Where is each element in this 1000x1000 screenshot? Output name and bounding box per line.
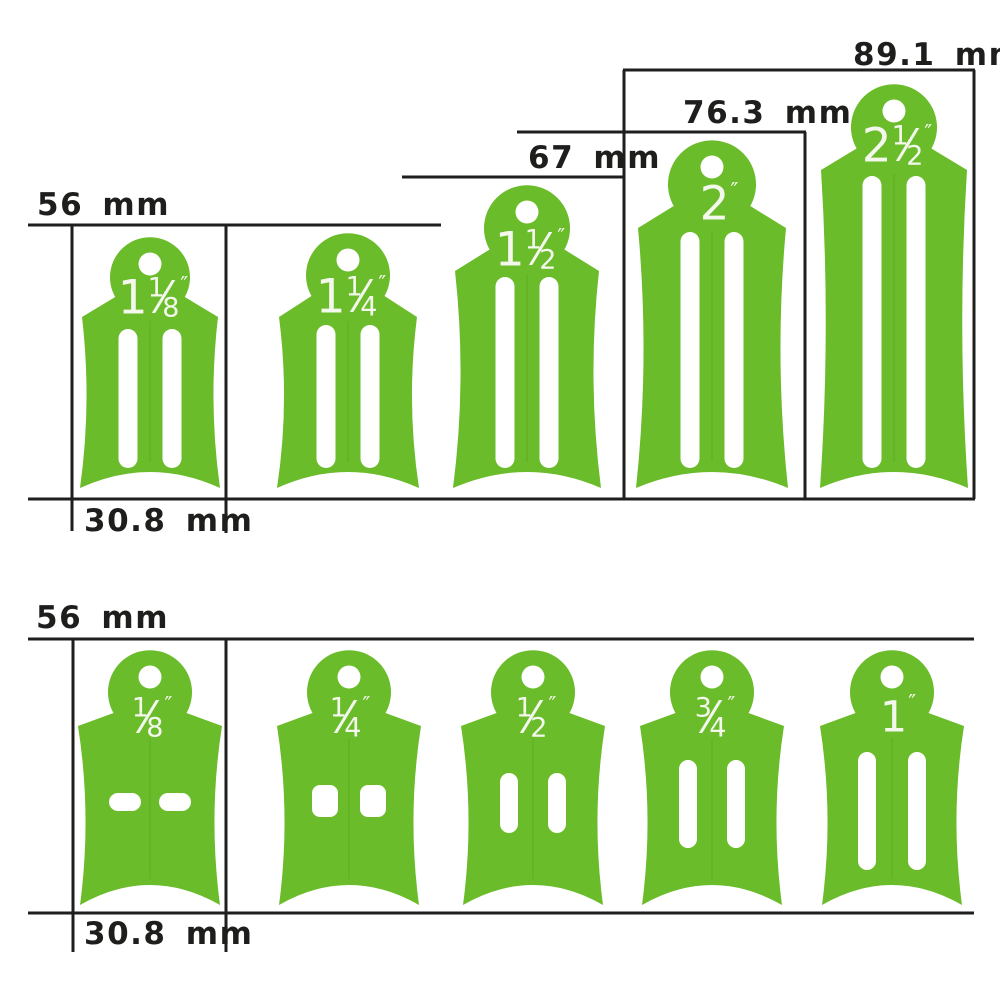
tag-label-1-4: 1⁄4″: [330, 695, 371, 742]
label-inch-mark: ″: [548, 693, 556, 717]
label-denominator: 8: [162, 293, 179, 324]
tag-label-1-2: 1⁄2″: [516, 695, 557, 742]
label-inch-mark: ″: [362, 693, 370, 717]
tag-label-3-4: 3⁄4″: [695, 695, 736, 742]
tags-top-row: [80, 84, 968, 488]
tag-label-1: 1″: [880, 693, 916, 740]
label-inch-mark: ″: [908, 691, 916, 715]
dimension-diagram: [0, 0, 1000, 1000]
label-denominator: 8: [146, 713, 163, 744]
tag-label-1-1-4: 11⁄4″: [316, 274, 387, 321]
dim-label-56mm-bottom: 56 mm: [36, 603, 169, 634]
tag-label-2-1-2: 21⁄2″: [862, 123, 933, 170]
tags-bottom-row: [78, 650, 964, 905]
dim-label-89mm: 89.1 mm: [853, 40, 1000, 71]
label-whole: 1: [118, 271, 148, 326]
label-inch-mark: ″: [164, 693, 172, 717]
label-inch-mark: ″: [180, 273, 188, 297]
tag-label-1-1-8: 11⁄8″: [118, 275, 189, 322]
dim-label-76mm: 76.3 mm: [683, 98, 852, 129]
label-whole: 1: [880, 693, 907, 743]
label-whole: 2: [862, 119, 892, 174]
label-inch-mark: ″: [731, 179, 739, 203]
dim-label-67mm: 67 mm: [528, 143, 661, 174]
dim-label-30mm-bottom: 30.8 mm: [84, 919, 253, 950]
label-inch-mark: ″: [378, 272, 386, 296]
label-denominator: 4: [709, 713, 726, 744]
label-whole: 1: [316, 270, 346, 325]
label-denominator: 4: [360, 292, 377, 323]
label-whole: 2: [700, 177, 730, 232]
tag-label-2: 2″: [700, 181, 739, 228]
label-denominator: 4: [344, 713, 361, 744]
label-whole: 1: [495, 223, 525, 278]
label-denominator: 2: [906, 141, 923, 172]
diagram-canvas: 56 mm 67 mm 76.3 mm 89.1 mm 30.8 mm 56 m…: [0, 0, 1000, 1000]
label-inch-mark: ″: [924, 121, 932, 145]
dim-label-56mm-top: 56 mm: [37, 190, 170, 221]
label-denominator: 2: [539, 245, 556, 276]
label-inch-mark: ″: [557, 225, 565, 249]
label-inch-mark: ″: [727, 693, 735, 717]
tag-label-1-8: 1⁄8″: [132, 695, 173, 742]
label-denominator: 2: [530, 713, 547, 744]
dim-label-30mm-top: 30.8 mm: [84, 506, 253, 537]
tag-label-1-1-2: 11⁄2″: [495, 227, 566, 274]
